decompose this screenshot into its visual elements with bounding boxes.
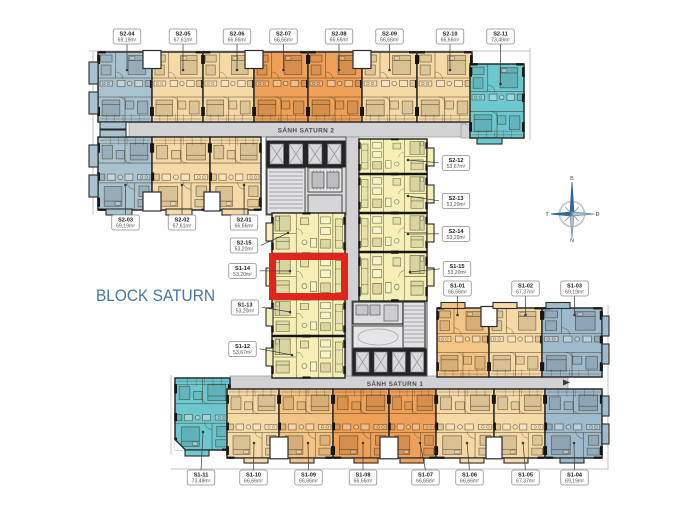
svg-text:67,61m²: 67,61m² (173, 224, 192, 230)
svg-text:66,66m²: 66,66m² (354, 479, 373, 485)
svg-text:S2-14: S2-14 (449, 229, 465, 235)
svg-text:53,20m²: 53,20m² (236, 309, 255, 315)
svg-text:53,20m²: 53,20m² (447, 235, 466, 241)
svg-text:S1-05: S1-05 (518, 473, 533, 479)
svg-text:67,37m²: 67,37m² (516, 290, 535, 296)
svg-text:S1-08: S1-08 (356, 473, 371, 479)
svg-text:S1-14: S1-14 (235, 266, 251, 272)
svg-text:73,49m²: 73,49m² (192, 479, 211, 485)
svg-text:66,66m²: 66,66m² (299, 479, 318, 485)
svg-text:S1-12: S1-12 (235, 344, 250, 350)
svg-text:53,20m²: 53,20m² (447, 202, 466, 208)
svg-text:S2-15: S2-15 (237, 241, 252, 247)
svg-text:53,67m²: 53,67m² (233, 350, 252, 356)
svg-text:66,66m²: 66,66m² (235, 224, 254, 230)
svg-text:SẢNH SATURN 2: SẢNH SATURN 2 (278, 126, 335, 135)
svg-text:S1-04: S1-04 (567, 473, 583, 479)
svg-text:S2-09: S2-09 (382, 32, 397, 38)
svg-text:N: N (570, 238, 574, 244)
svg-text:SẢNH SATURN 1: SẢNH SATURN 1 (367, 379, 424, 388)
svg-text:69,19m²: 69,19m² (118, 38, 137, 44)
svg-text:S1-11: S1-11 (194, 473, 209, 479)
svg-text:66,66m²: 66,66m² (416, 479, 435, 485)
svg-text:S1-13: S1-13 (238, 303, 253, 309)
svg-text:69,19m²: 69,19m² (565, 290, 584, 296)
svg-text:53,20m²: 53,20m² (448, 270, 467, 276)
svg-text:S1-06: S1-06 (462, 473, 477, 479)
svg-text:66,66m²: 66,66m² (448, 290, 467, 296)
svg-text:53,20m²: 53,20m² (233, 272, 252, 278)
svg-text:B: B (570, 176, 574, 182)
svg-text:S1-02: S1-02 (518, 284, 533, 290)
svg-text:S2-01: S2-01 (237, 218, 252, 224)
svg-text:S2-06: S2-06 (230, 32, 245, 38)
svg-text:67,37m²: 67,37m² (516, 479, 535, 485)
svg-text:66,66m²: 66,66m² (460, 479, 479, 485)
svg-text:S1-07: S1-07 (418, 473, 433, 479)
svg-text:66,66m²: 66,66m² (330, 38, 349, 44)
svg-text:66,66m²: 66,66m² (244, 479, 263, 485)
svg-text:53,20m²: 53,20m² (235, 247, 254, 253)
svg-text:66,66m²: 66,66m² (380, 38, 399, 44)
svg-text:S2-13: S2-13 (449, 196, 464, 202)
svg-text:S1-03: S1-03 (567, 284, 582, 290)
svg-text:S2-03: S2-03 (118, 218, 133, 224)
svg-text:66,66m²: 66,66m² (274, 38, 293, 44)
svg-text:S1-15: S1-15 (450, 264, 465, 270)
svg-text:S2-08: S2-08 (332, 32, 347, 38)
svg-text:S2-10: S2-10 (443, 32, 458, 38)
svg-text:66,66m²: 66,66m² (228, 38, 247, 44)
svg-text:S1-09: S1-09 (301, 473, 316, 479)
svg-text:S2-11: S2-11 (493, 32, 508, 38)
svg-text:S1-10: S1-10 (246, 473, 261, 479)
svg-text:S2-02: S2-02 (175, 218, 190, 224)
svg-text:S2-12: S2-12 (449, 158, 464, 164)
svg-text:S2-04: S2-04 (120, 32, 136, 38)
svg-text:69,19m²: 69,19m² (116, 224, 135, 230)
svg-text:67,61m²: 67,61m² (174, 38, 193, 44)
svg-text:BLOCK SATURN: BLOCK SATURN (96, 287, 215, 305)
svg-text:53,67m²: 53,67m² (447, 164, 466, 170)
svg-text:S1-01: S1-01 (450, 284, 465, 290)
svg-text:73,49m²: 73,49m² (491, 38, 510, 44)
svg-text:T: T (545, 212, 549, 218)
svg-text:S2-05: S2-05 (176, 32, 191, 38)
svg-text:S2-07: S2-07 (276, 32, 291, 38)
svg-text:66,66m²: 66,66m² (441, 38, 460, 44)
svg-text:69,19m²: 69,19m² (565, 479, 584, 485)
svg-text:Đ: Đ (596, 212, 600, 218)
